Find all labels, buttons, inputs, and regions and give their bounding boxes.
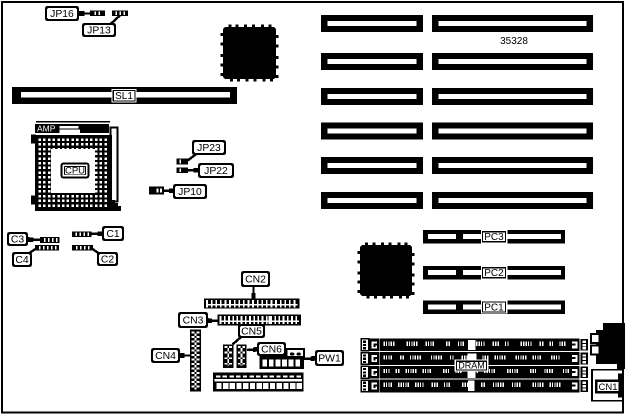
svg-text:CN1: CN1 bbox=[598, 382, 617, 393]
svg-text:DRAM: DRAM bbox=[458, 361, 485, 371]
svg-text:JP22: JP22 bbox=[204, 166, 228, 177]
svg-text:PW1: PW1 bbox=[318, 353, 341, 364]
svg-text:JP13: JP13 bbox=[87, 25, 111, 36]
svg-text:C2: C2 bbox=[101, 254, 115, 265]
svg-text:SL1: SL1 bbox=[115, 91, 133, 102]
svg-text:CPU: CPU bbox=[65, 165, 85, 176]
svg-text:PC2: PC2 bbox=[484, 268, 504, 279]
svg-text:CN4: CN4 bbox=[155, 351, 176, 362]
svg-text:PC1: PC1 bbox=[484, 303, 504, 314]
svg-text:CN6: CN6 bbox=[261, 344, 282, 355]
svg-text:35328: 35328 bbox=[500, 36, 528, 47]
svg-text:C4: C4 bbox=[15, 255, 29, 266]
svg-text:C3: C3 bbox=[11, 234, 25, 245]
svg-text:JP23: JP23 bbox=[197, 143, 221, 154]
svg-text:CN5: CN5 bbox=[241, 326, 262, 337]
svg-text:JP16: JP16 bbox=[50, 9, 74, 20]
svg-text:CN2: CN2 bbox=[245, 274, 266, 285]
svg-text:CN3: CN3 bbox=[183, 315, 204, 326]
svg-text:AMP: AMP bbox=[37, 124, 56, 134]
svg-text:PC3: PC3 bbox=[484, 232, 504, 243]
svg-text:JP10: JP10 bbox=[178, 187, 202, 198]
svg-text:C1: C1 bbox=[106, 229, 120, 240]
